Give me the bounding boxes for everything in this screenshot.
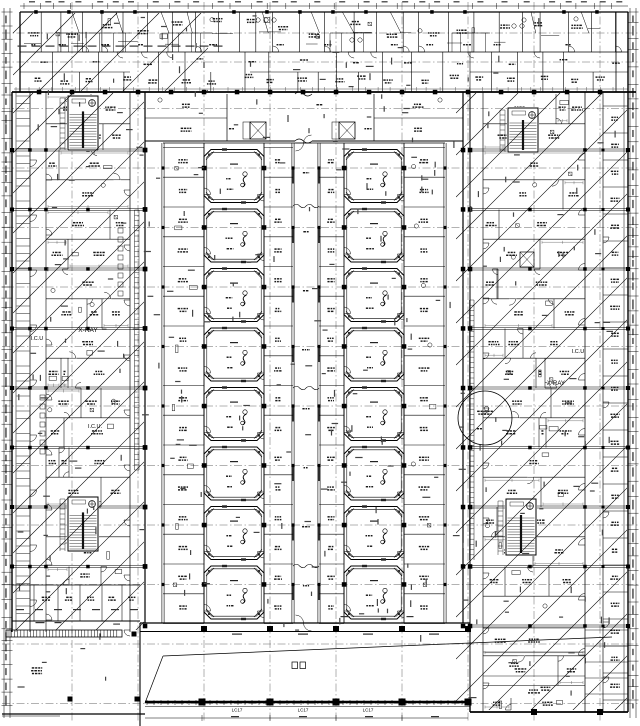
svg-text:LC17: LC17 [232, 708, 243, 713]
svg-text:I.C.U: I.C.U [31, 336, 44, 342]
svg-text:I.C.U: I.C.U [572, 349, 585, 355]
svg-text:LC17: LC17 [298, 708, 309, 713]
svg-text:I.C.U.: I.C.U. [88, 424, 103, 430]
svg-text:LC17: LC17 [363, 708, 374, 713]
svg-text:X-RAY: X-RAY [78, 327, 98, 334]
svg-text:X-RAY: X-RAY [547, 381, 565, 387]
